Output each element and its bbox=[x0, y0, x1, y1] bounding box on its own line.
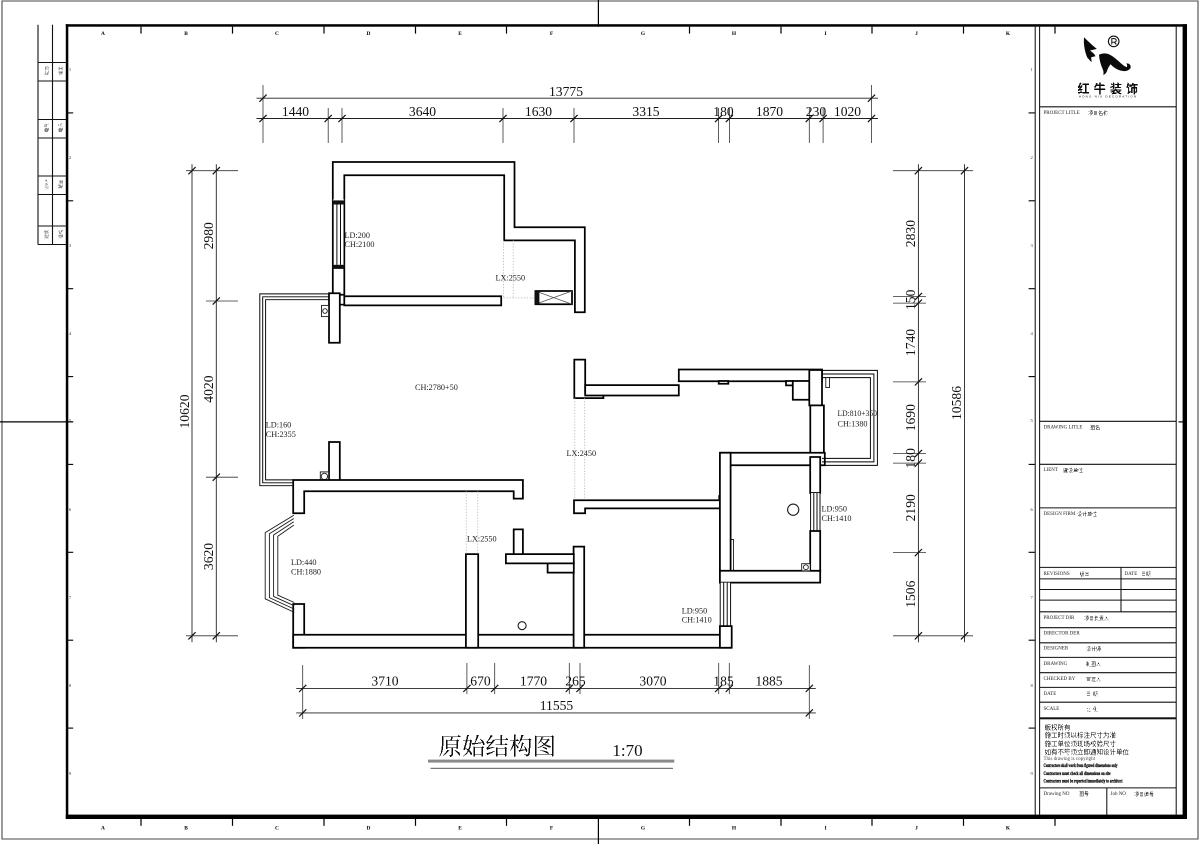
svg-text:C: C bbox=[275, 31, 279, 37]
svg-text:1690: 1690 bbox=[903, 404, 918, 431]
svg-text:LX:2550: LX:2550 bbox=[496, 274, 526, 283]
svg-text:DESIGNER: DESIGNER bbox=[1044, 647, 1069, 652]
svg-text:I: I bbox=[824, 31, 826, 37]
svg-text:185: 185 bbox=[713, 674, 734, 689]
svg-text:LD:810+350: LD:810+350 bbox=[838, 409, 878, 418]
svg-text:E: E bbox=[458, 31, 462, 37]
svg-text:A: A bbox=[101, 826, 105, 832]
svg-text:230: 230 bbox=[806, 104, 827, 119]
svg-text:2190: 2190 bbox=[903, 494, 918, 521]
svg-text:1870: 1870 bbox=[756, 104, 783, 119]
svg-text:CH:1410: CH:1410 bbox=[822, 514, 852, 523]
svg-text:A: A bbox=[101, 31, 105, 37]
svg-text:CH:1380: CH:1380 bbox=[838, 420, 868, 429]
svg-text:J: J bbox=[915, 31, 918, 37]
svg-text:DRAWING LITLE: DRAWING LITLE bbox=[1044, 425, 1083, 430]
svg-text:DRAWING: DRAWING bbox=[1044, 662, 1068, 667]
svg-text:I: I bbox=[824, 826, 826, 832]
svg-text:CH:1410: CH:1410 bbox=[682, 615, 712, 624]
svg-text:1506: 1506 bbox=[903, 580, 918, 607]
svg-text:CH:1880: CH:1880 bbox=[291, 567, 321, 576]
svg-text:HONG NIU DECORATION: HONG NIU DECORATION bbox=[1079, 95, 1138, 99]
svg-text:This drawing is copyright: This drawing is copyright bbox=[1044, 757, 1096, 762]
svg-text:2830: 2830 bbox=[903, 220, 918, 247]
svg-text:10620: 10620 bbox=[177, 394, 192, 428]
svg-text:265: 265 bbox=[565, 674, 586, 689]
svg-text:Contractors must be reported i: Contractors must be reported immediately… bbox=[1044, 780, 1123, 785]
svg-text:3640: 3640 bbox=[409, 104, 436, 119]
svg-text:LIENT: LIENT bbox=[1044, 468, 1058, 473]
svg-text:Contractors must check all dim: Contractors must check all dimensions on… bbox=[1044, 772, 1112, 777]
svg-text:DATE: DATE bbox=[1044, 692, 1057, 697]
svg-text:SCALE: SCALE bbox=[1044, 707, 1060, 712]
svg-text:B: B bbox=[184, 826, 188, 832]
svg-text:DATE: DATE bbox=[1125, 572, 1138, 577]
svg-text:D: D bbox=[367, 31, 371, 37]
svg-text:1630: 1630 bbox=[525, 104, 552, 119]
svg-text:11555: 11555 bbox=[540, 698, 574, 713]
svg-text:PROJECT LITLE: PROJECT LITLE bbox=[1044, 111, 1080, 116]
svg-text:1770: 1770 bbox=[520, 674, 547, 689]
svg-text:2980: 2980 bbox=[201, 222, 216, 249]
svg-text:LD:950: LD:950 bbox=[682, 606, 707, 615]
svg-text:CH:2780+50: CH:2780+50 bbox=[415, 383, 458, 392]
svg-text:CHECKED BY: CHECKED BY bbox=[1044, 677, 1076, 682]
svg-text:1:70: 1:70 bbox=[612, 741, 642, 760]
svg-text:REVISIONS: REVISIONS bbox=[1044, 572, 1070, 577]
svg-text:LX:2550: LX:2550 bbox=[467, 535, 497, 544]
svg-text:Drawing NO: Drawing NO bbox=[1044, 792, 1070, 797]
svg-text:150: 150 bbox=[903, 289, 918, 310]
svg-text:13775: 13775 bbox=[549, 84, 583, 99]
svg-text:10586: 10586 bbox=[949, 386, 964, 420]
svg-text:D: D bbox=[367, 826, 371, 832]
svg-text:PROJECT DIR: PROJECT DIR bbox=[1044, 616, 1076, 621]
svg-text:LD:440: LD:440 bbox=[291, 558, 316, 567]
svg-text:LX:2450: LX:2450 bbox=[567, 449, 597, 458]
svg-text:J: J bbox=[915, 826, 918, 832]
svg-text:LD:160: LD:160 bbox=[266, 421, 291, 430]
svg-text:CH:2100: CH:2100 bbox=[345, 240, 375, 249]
svg-text:DIRECTOR DER: DIRECTOR DER bbox=[1044, 631, 1081, 636]
svg-text:3315: 3315 bbox=[632, 104, 659, 119]
svg-text:180: 180 bbox=[713, 104, 734, 119]
svg-text:E: E bbox=[458, 826, 462, 832]
svg-text:1020: 1020 bbox=[834, 104, 861, 119]
svg-text:LD:950: LD:950 bbox=[822, 505, 847, 514]
svg-text:670: 670 bbox=[470, 674, 491, 689]
svg-text:C: C bbox=[275, 826, 279, 832]
svg-text:B: B bbox=[184, 31, 188, 37]
svg-text:4020: 4020 bbox=[201, 375, 216, 402]
svg-text:3710: 3710 bbox=[371, 674, 398, 689]
svg-text:3620: 3620 bbox=[201, 543, 216, 570]
svg-text:180: 180 bbox=[903, 448, 918, 469]
svg-text:Contractors shall work from fi: Contractors shall work from figured dime… bbox=[1044, 764, 1118, 769]
svg-text:Job NO: Job NO bbox=[1111, 792, 1127, 797]
svg-text:1885: 1885 bbox=[755, 674, 782, 689]
svg-text:DESIGN FIRM: DESIGN FIRM bbox=[1044, 512, 1076, 517]
svg-text:1440: 1440 bbox=[282, 104, 309, 119]
svg-text:1740: 1740 bbox=[903, 329, 918, 356]
svg-text:3070: 3070 bbox=[639, 674, 666, 689]
svg-text:LD:200: LD:200 bbox=[345, 231, 370, 240]
svg-text:CH:2355: CH:2355 bbox=[266, 430, 296, 439]
